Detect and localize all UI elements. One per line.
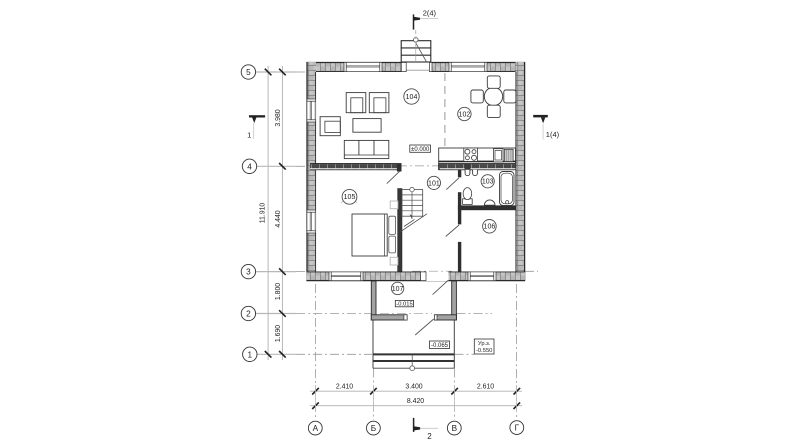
svg-text:107: 107 (392, 286, 404, 293)
svg-text:4.440: 4.440 (275, 210, 282, 227)
svg-text:3.400: 3.400 (405, 384, 422, 391)
svg-text:102: 102 (459, 111, 471, 118)
svg-text:3.980: 3.980 (275, 109, 282, 126)
svg-text:-0.065: -0.065 (431, 343, 449, 349)
svg-text:1(4): 1(4) (546, 130, 560, 139)
svg-text:1: 1 (247, 130, 251, 139)
svg-text:-0.015: -0.015 (396, 302, 412, 308)
svg-text:2.610: 2.610 (477, 384, 494, 391)
svg-text:101: 101 (428, 180, 440, 187)
svg-text:104: 104 (406, 94, 418, 101)
svg-text:2: 2 (246, 310, 251, 319)
svg-text:1.690: 1.690 (275, 325, 282, 342)
svg-text:±0.000: ±0.000 (411, 147, 430, 153)
svg-text:Ур.з.: Ур.з. (478, 341, 491, 347)
svg-text:3: 3 (246, 268, 251, 277)
svg-text:4: 4 (247, 162, 252, 171)
svg-text:2(4): 2(4) (423, 9, 437, 18)
svg-text:5: 5 (246, 68, 251, 77)
svg-text:105: 105 (344, 194, 356, 201)
svg-text:11.910: 11.910 (260, 203, 267, 224)
svg-text:Г: Г (515, 424, 520, 433)
svg-text:В: В (452, 424, 458, 433)
svg-text:8.420: 8.420 (407, 398, 424, 405)
svg-text:-0.550: -0.550 (476, 348, 492, 354)
svg-text:А: А (313, 424, 319, 433)
svg-text:106: 106 (484, 224, 496, 231)
svg-text:2.410: 2.410 (336, 384, 353, 391)
svg-text:1: 1 (248, 350, 253, 359)
svg-text:Б: Б (371, 424, 376, 433)
svg-text:1.800: 1.800 (275, 283, 282, 300)
svg-text:2: 2 (427, 432, 432, 441)
svg-text:103: 103 (482, 179, 494, 186)
